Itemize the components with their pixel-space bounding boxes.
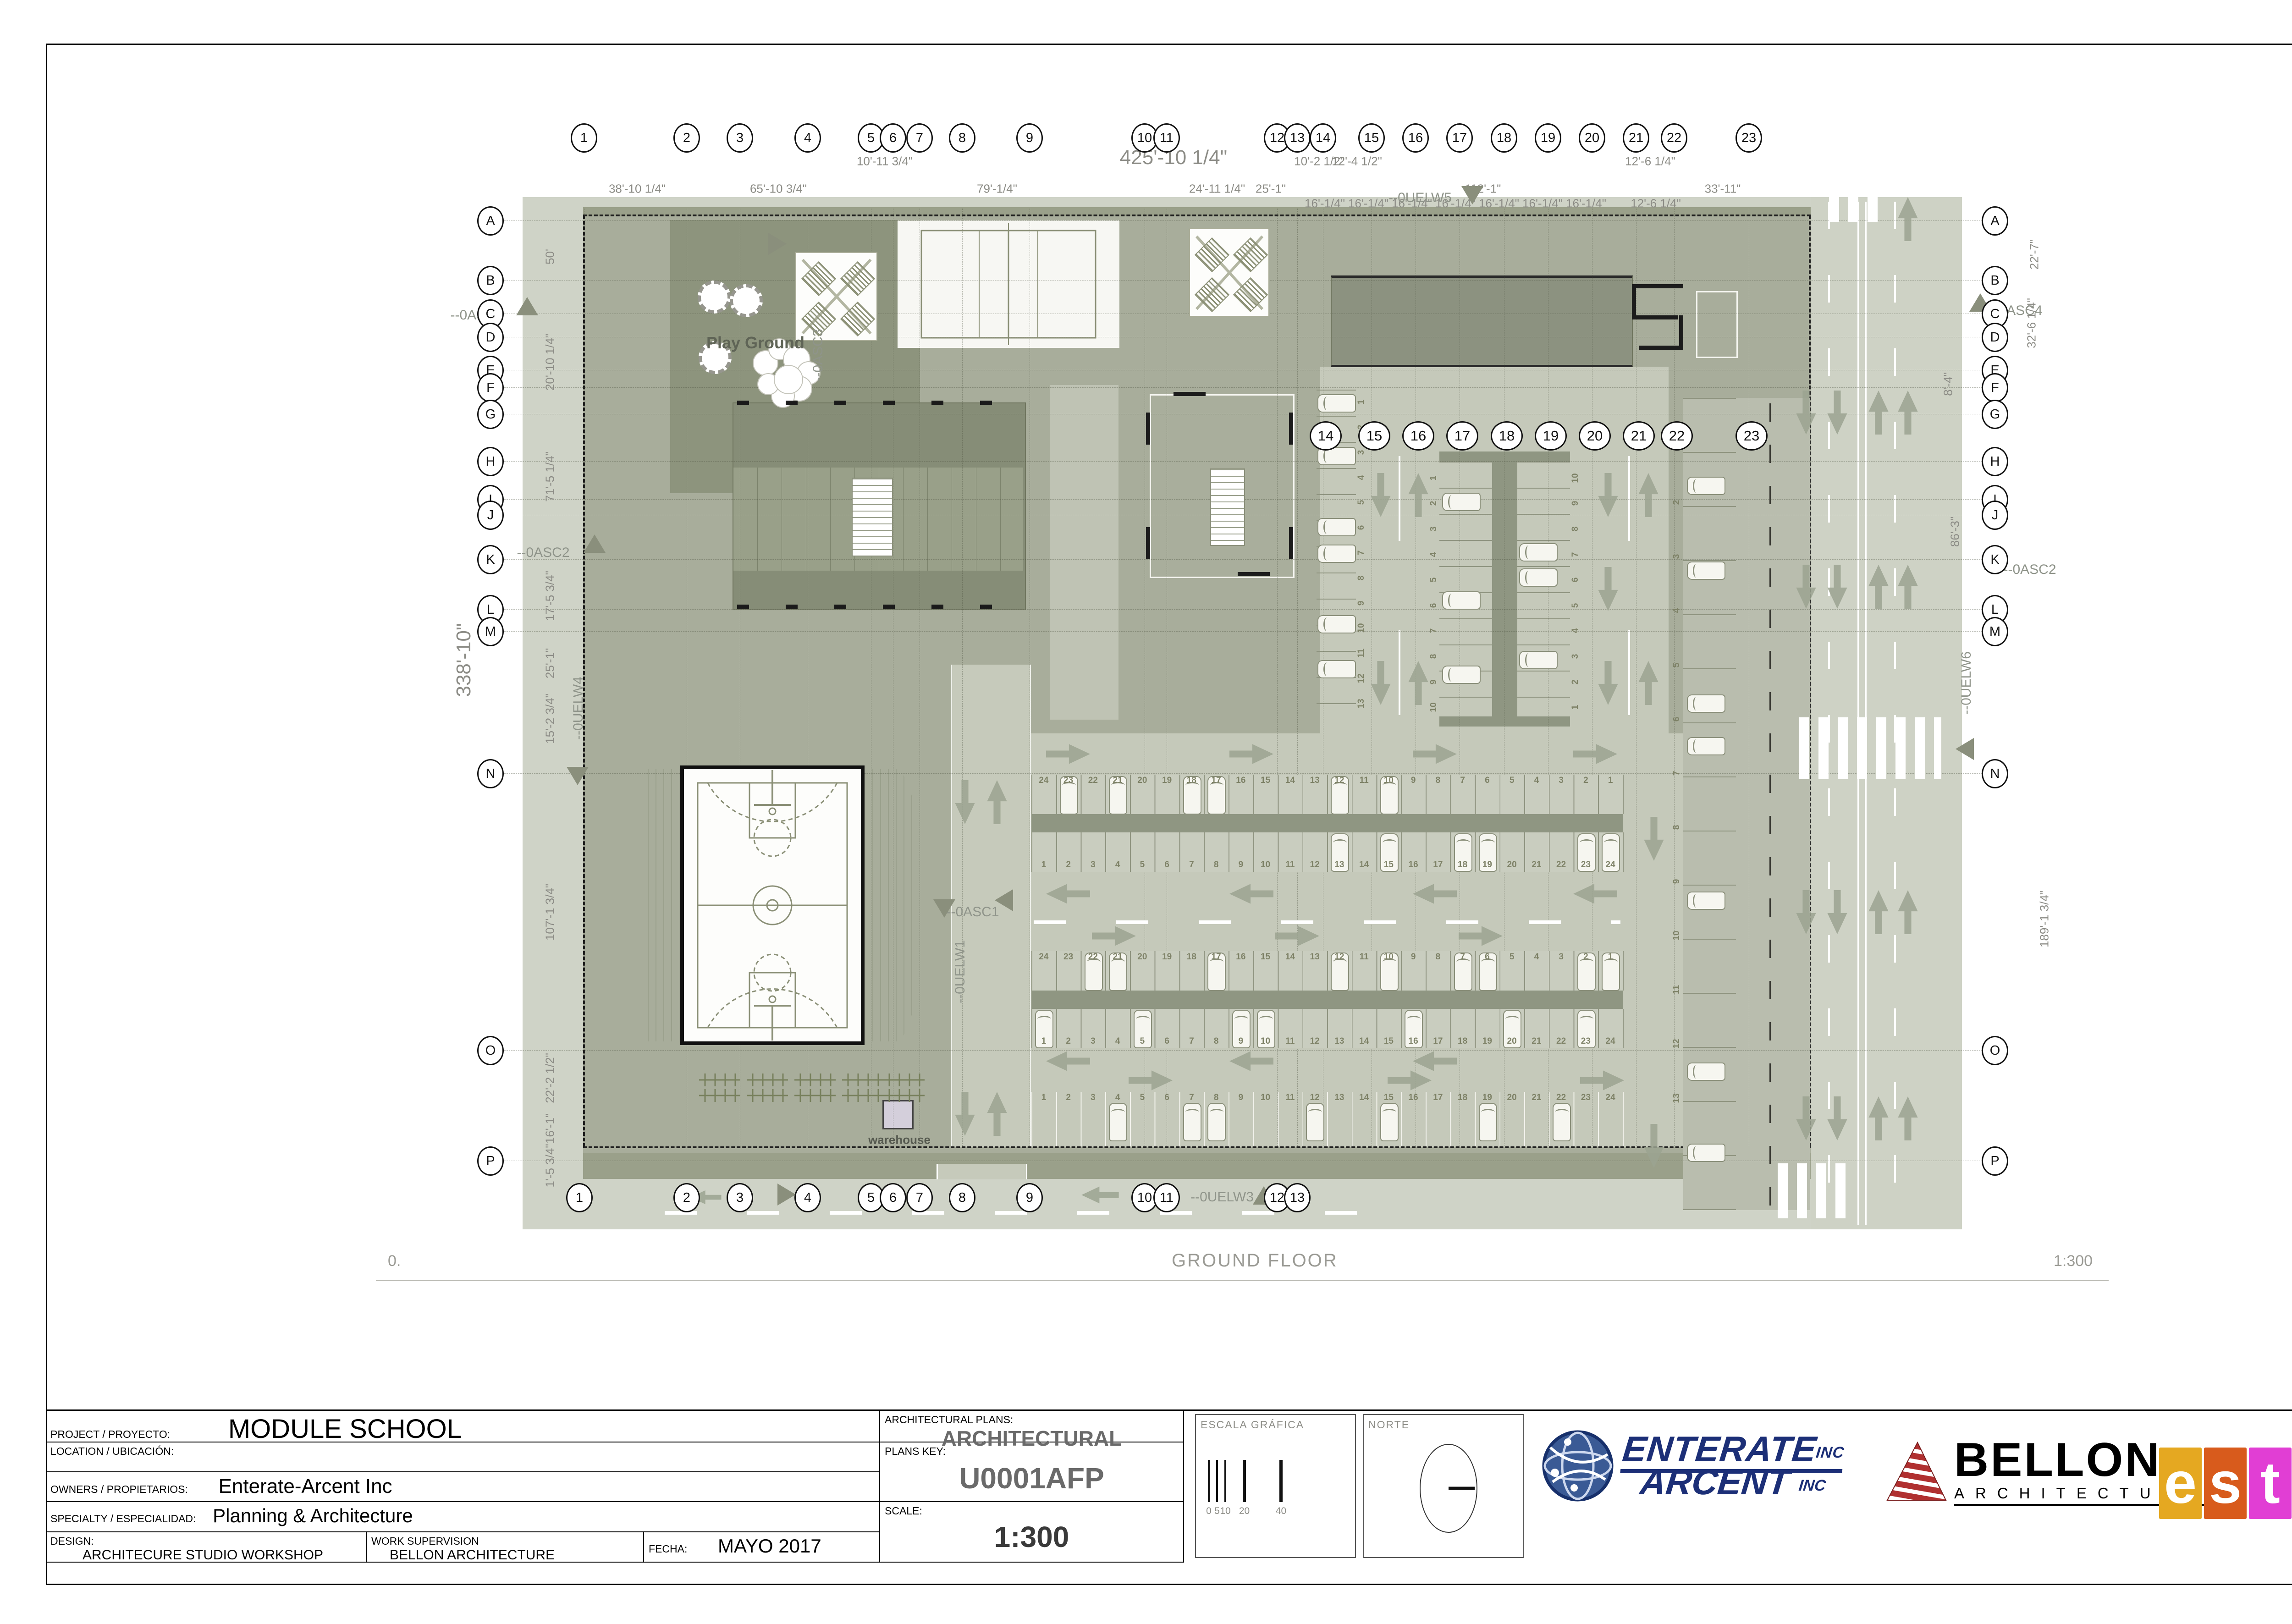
road-centerline-b: [1865, 202, 1867, 1225]
scale-bar: [1216, 1460, 1218, 1502]
cell-location: LOCATION / UBICACIÓN:: [46, 1442, 880, 1472]
stall-number: 12: [1356, 673, 1366, 683]
dimension-label: 16'-1/4": [1479, 197, 1519, 211]
parking-band-1-median: [1031, 814, 1623, 832]
dimension-label: 12'-4 1/2": [1332, 154, 1382, 169]
stall-number: 14: [1285, 776, 1295, 786]
south-entry-drive: [937, 1164, 1027, 1179]
stall-number: 12: [1334, 776, 1344, 786]
stall-number: 6: [1429, 603, 1439, 608]
estar-letter-block: t: [2249, 1448, 2292, 1519]
grid-bubble-4: 4: [794, 123, 821, 153]
stall-number: 24: [1039, 776, 1048, 786]
title-block: PROJECT / PROYECTO: MODULE SCHOOL LOCATI…: [46, 1409, 2292, 1563]
stall-number: 2: [1570, 679, 1581, 684]
stall-number: 20: [1507, 1036, 1517, 1046]
stall-number: 11: [1285, 860, 1295, 870]
stall-number: 10: [1356, 623, 1366, 633]
grid-bubble-6: 6: [880, 123, 906, 153]
plans-label: ARCHITECTURAL PLANS:: [885, 1414, 1179, 1426]
courtyard-band: [1050, 385, 1118, 720]
dimension-label: 22'-7": [2028, 239, 2042, 270]
stall-number: 11: [1360, 952, 1369, 962]
stall-number: 5: [1356, 500, 1366, 505]
stall-number: 17: [1433, 860, 1443, 870]
cell-plans: ARCHITECTURAL PLANS: ARCHITECTURAL: [880, 1411, 1184, 1442]
lane-line-3: [1628, 456, 1630, 541]
stall-number: 9: [1239, 1036, 1244, 1046]
stall-number: 20: [1507, 1093, 1517, 1103]
stall-number: 16: [1409, 1036, 1418, 1046]
stall-number: 8: [1214, 1093, 1219, 1103]
annex-e-spine-left: [1632, 284, 1636, 319]
stall-number: 9: [1411, 952, 1416, 962]
north-box: NORTE: [1363, 1414, 1524, 1558]
stall-number: 10: [1384, 952, 1394, 962]
stall-number: 22: [1088, 952, 1098, 962]
gridline-col-5: [871, 209, 871, 1146]
stall-number: 7: [1189, 1093, 1194, 1103]
design-label: DESIGN:: [50, 1535, 361, 1547]
stall-number: 8: [1429, 654, 1439, 659]
stall-number: 22: [1556, 1093, 1566, 1103]
annotation-label: --0UELW6: [1959, 651, 1974, 715]
shade-canopy-west: [795, 252, 877, 341]
stall-number: 1: [1356, 400, 1366, 405]
building-west-stairwell: [852, 478, 893, 556]
car: [1317, 615, 1356, 633]
stall-number: 10: [1261, 1093, 1270, 1103]
car: [1306, 1103, 1324, 1141]
plan-scale: 1:300: [2054, 1252, 2093, 1270]
stall-number: 7: [1429, 628, 1439, 633]
stall-number: 5: [1510, 952, 1515, 962]
stall-number: 16: [1236, 952, 1245, 962]
car: [1687, 1062, 1725, 1081]
stall-number: 7: [1460, 952, 1465, 962]
scale-bar: [1224, 1460, 1226, 1502]
stall-number: 3: [1559, 952, 1564, 962]
stall-number: 9: [1356, 600, 1366, 606]
dimension-label: 12'-6 1/4": [1625, 154, 1675, 169]
stall-number: 6: [1672, 716, 1682, 721]
dimension-label: 17'-5 3/4": [543, 571, 557, 621]
gridline-row-F: [504, 387, 1989, 388]
stall-number: 8: [1436, 952, 1441, 962]
grid-bubble-O: O: [1982, 1036, 2008, 1065]
stall-number: 24: [1606, 1036, 1615, 1046]
annotation-label: --0ASC2: [2003, 562, 2056, 578]
key-label: PLANS KEY:: [885, 1445, 1179, 1458]
grid-bubble-1: 1: [571, 123, 597, 153]
enterate-inc: INC: [1815, 1444, 1846, 1461]
stall-number: 4: [1429, 552, 1439, 557]
car: [1109, 1103, 1127, 1141]
stall-number: 5: [1510, 776, 1515, 786]
road-lane-dash-right: [1894, 202, 1896, 1225]
gridline-row-A: [504, 220, 1989, 221]
plan-number: 0.: [388, 1252, 401, 1270]
road-lane-dash-left: [1828, 202, 1830, 1225]
stall-number: 7: [1356, 551, 1366, 556]
grid-bubble-19: 19: [1535, 123, 1561, 153]
stall-number: 17: [1433, 1093, 1443, 1103]
annotation-label: Play Ground: [706, 333, 804, 352]
owners-label: OWNERS / PROPIETARIOS:: [50, 1483, 188, 1495]
gridline-col-9: [1030, 209, 1030, 1146]
building-center-wall-5: [1174, 392, 1206, 396]
grid-bubble-K: K: [477, 545, 504, 574]
scale-label: SCALE:: [885, 1505, 1179, 1517]
dimension-label: 20'-10 1/4": [543, 334, 557, 391]
stall-number: 19: [1482, 1036, 1492, 1046]
building-center-wall-1: [1146, 413, 1150, 445]
car: [1442, 666, 1481, 684]
stall-number: 13: [1310, 952, 1320, 962]
stall-number: 8: [1672, 825, 1682, 830]
stall-number: 19: [1482, 1093, 1492, 1103]
stall-number: 3: [1091, 860, 1096, 870]
stall-number: 24: [1606, 860, 1615, 870]
stall-number: 17: [1433, 1036, 1443, 1046]
gridline-row-E: [504, 370, 1989, 370]
grid-bubble-9: 9: [1016, 123, 1043, 153]
specialty-value: Planning & Architecture: [213, 1505, 413, 1526]
stall-number: 23: [1581, 1093, 1591, 1103]
stall-number: 1: [1429, 476, 1439, 481]
cell-specialty: SPECIALTY / ESPECIALIDAD: Planning & Arc…: [46, 1502, 880, 1532]
grid-bubble-3: 3: [727, 1183, 753, 1212]
right-strip-lane-line: [1769, 403, 1771, 1206]
stall-number: 1: [1570, 705, 1581, 710]
stall-number: 7: [1570, 552, 1581, 557]
dimension-label: 16'-1/4": [1522, 197, 1563, 211]
gridline-col-8: [962, 209, 963, 1146]
marker-triangle-icon: [1461, 186, 1483, 204]
stall-number: 21: [1532, 1093, 1541, 1103]
bellon-triangle-icon: [1882, 1437, 1950, 1506]
car: [1380, 1103, 1399, 1141]
stall-number: 5: [1570, 603, 1581, 608]
car: [1317, 545, 1356, 563]
grid-bubble-9: 9: [1016, 1183, 1043, 1212]
scale-bar: [1243, 1460, 1246, 1502]
plan-title: GROUND FLOOR: [1172, 1250, 1338, 1271]
car: [1207, 1103, 1226, 1141]
annotation-label: --0ASC2: [517, 545, 569, 561]
scale-bar: [1208, 1460, 1210, 1502]
bleachers-west: [641, 769, 679, 1041]
grid-bubble-16: 16: [1402, 421, 1434, 451]
lane-line-2: [1399, 630, 1400, 715]
dimension-label: 79'-1/4": [977, 182, 1017, 196]
scale-tick-label: 0: [1206, 1506, 1212, 1517]
stall-number: 23: [1063, 776, 1073, 786]
stall-number: 10: [1261, 1036, 1270, 1046]
grid-bubble-M: M: [477, 617, 504, 646]
globe-icon: [1541, 1429, 1614, 1503]
building-center-stairwell: [1210, 468, 1245, 546]
cell-owners: OWNERS / PROPIETARIOS: Enterate-Arcent I…: [46, 1472, 880, 1502]
building-center-wall-6: [1238, 572, 1270, 576]
car: [1317, 394, 1356, 413]
crosswalk-top: [1829, 187, 1886, 222]
building-west-columns-top: [737, 401, 1021, 405]
annotation-label: --0ASC3: [810, 329, 826, 381]
dimension-label: 38'-10 1/4": [609, 182, 666, 196]
dimension-label: 1'-5 3/4": [543, 1144, 557, 1187]
stall-number: 15: [1261, 952, 1270, 962]
stall-number: 3: [1559, 776, 1564, 786]
car: [1519, 543, 1558, 562]
stall-number: 6: [1356, 525, 1366, 530]
stall-number: 18: [1458, 1093, 1467, 1103]
grid-bubble-15: 15: [1358, 123, 1385, 153]
annotation-label: --0UELW4: [571, 677, 586, 740]
grid-bubble-13: 13: [1284, 123, 1311, 153]
car: [1687, 477, 1725, 495]
grid-bubble-21: 21: [1623, 123, 1649, 153]
tree-icon: [792, 1067, 838, 1112]
grid-bubble-17: 17: [1446, 421, 1478, 451]
grid-bubble-P: P: [1982, 1146, 2008, 1176]
lane-line-4: [1628, 630, 1630, 715]
building-center-wall-3: [1146, 527, 1150, 559]
stall-number: 2: [1672, 500, 1682, 505]
stall-number: 5: [1140, 1036, 1145, 1046]
gridline-row-I: [504, 499, 1989, 500]
building-west-columns-bottom: [737, 605, 1021, 609]
stall-number: 20: [1507, 860, 1517, 870]
dimension-label: 16'-1/4": [1566, 197, 1606, 211]
dimension-label: 86'-3": [1948, 517, 1962, 547]
cell-scale: SCALE: 1:300: [880, 1502, 1184, 1563]
mid-parking-header-top: [1439, 451, 1570, 462]
cell-project: PROJECT / PROYECTO: MODULE SCHOOL: [46, 1411, 880, 1442]
stall-number: 11: [1356, 649, 1366, 658]
stall-number: 5: [1672, 662, 1682, 667]
crosswalk-bottom: [1778, 1163, 1846, 1218]
marker-triangle-icon: [584, 534, 606, 553]
stall-number: 6: [1164, 1093, 1169, 1103]
annex-e-bar-bottom: [1639, 346, 1683, 350]
road-centerline-a: [1857, 202, 1859, 1225]
car: [1687, 892, 1725, 910]
grid-bubble-D: D: [1982, 323, 2008, 352]
key-value: U0001AFP: [885, 1461, 1179, 1495]
car: [1442, 493, 1481, 511]
grid-bubble-20: 20: [1579, 421, 1611, 451]
grid-bubble-19: 19: [1535, 421, 1567, 451]
stall-number: 18: [1187, 952, 1196, 962]
stall-number: 13: [1334, 860, 1344, 870]
grid-bubble-21: 21: [1623, 421, 1655, 451]
stall-number: 3: [1429, 527, 1439, 532]
annotation-label: --0UELW3: [1190, 1189, 1254, 1205]
annotation-label: --0UELW5: [1388, 190, 1452, 206]
dimension-label: 15'-2 3/4": [543, 694, 557, 744]
grid-bubble-N: N: [477, 759, 504, 788]
stall-number: 1: [1041, 860, 1047, 870]
grid-bubble-M: M: [1982, 617, 2008, 646]
stall-number: 19: [1162, 952, 1172, 962]
stall-number: 5: [1429, 578, 1439, 583]
grid-bubble-8: 8: [949, 123, 975, 153]
grid-bubble-17: 17: [1446, 123, 1473, 153]
car: [1553, 1103, 1571, 1141]
annex-e-bar-top: [1632, 284, 1683, 288]
cell-design: DESIGN: ARCHITECURE STUDIO WORKSHOP: [46, 1532, 367, 1563]
car: [1687, 1144, 1725, 1162]
stall-number: 11: [1285, 1093, 1295, 1103]
gridline-col-21: [1636, 209, 1636, 1146]
stall-number: 6: [1164, 1036, 1169, 1046]
bleachers-east: [865, 769, 913, 1041]
stall-number: 21: [1113, 952, 1123, 962]
stall-number: 12: [1310, 860, 1320, 870]
stall-number: 16: [1409, 1093, 1418, 1103]
stall-number: 4: [1534, 952, 1539, 962]
dimension-label: 50': [543, 249, 557, 264]
gridline-row-L: [504, 609, 1989, 610]
stall-number: 13: [1310, 776, 1320, 786]
stall-number: 11: [1360, 776, 1369, 786]
stall-number: 10: [1384, 776, 1394, 786]
stall-number: 7: [1460, 776, 1465, 786]
stall-number: 2: [1429, 501, 1439, 506]
grid-bubble-D: D: [477, 323, 504, 352]
gridline-col-7: [920, 209, 920, 1146]
playground-ring-2: [730, 284, 763, 317]
right-strip-stalls: [1683, 398, 1736, 1211]
grid-bubble-14: 14: [1310, 421, 1342, 451]
dimension-label: 22'-2 1/2": [543, 1053, 557, 1103]
grid-bubble-23: 23: [1736, 421, 1768, 451]
location-label: LOCATION / UBICACIÓN:: [50, 1445, 174, 1457]
stall-number: 17: [1212, 776, 1221, 786]
stall-number: 22: [1556, 860, 1566, 870]
annex-e-spine-right: [1679, 315, 1683, 350]
stall-number: 9: [1672, 879, 1682, 884]
mid-parking-header-bottom: [1439, 716, 1570, 727]
stall-number: 4: [1115, 1093, 1120, 1103]
stall-number: 22: [1556, 1036, 1566, 1046]
dimension-label: 189'-1 3/4": [2038, 891, 2052, 947]
stall-number: 22: [1088, 776, 1098, 786]
stall-number: 20: [1137, 776, 1147, 786]
grid-bubble-2: 2: [673, 123, 700, 153]
grid-bubble-A: A: [1982, 206, 2008, 236]
gridline-row-G: [504, 414, 1989, 414]
dimension-label: 8'-4": [1941, 372, 1956, 396]
dimension-label: 16'-1/4": [1348, 197, 1388, 211]
car: [1687, 562, 1725, 580]
stall-number: 3: [1570, 654, 1581, 659]
dimension-label: 33'-11": [1705, 182, 1741, 196]
grid-bubble-22: 22: [1661, 421, 1693, 451]
dimension-label: 25'-1": [1256, 182, 1286, 196]
road-zone: [1811, 197, 1962, 1229]
stall-number: 5: [1140, 860, 1145, 870]
grid-bubble-11: 11: [1153, 1183, 1180, 1212]
dimension-label: 71'-5 1/4": [543, 451, 557, 502]
owners-value: Enterate-Arcent Inc: [219, 1475, 392, 1497]
stall-number: 23: [1581, 1036, 1591, 1046]
stall-number: 1: [1608, 952, 1613, 962]
dimension-label: 12'-6 1/4": [1631, 197, 1681, 211]
stall-number: 16: [1409, 860, 1418, 870]
grid-bubble-F: F: [477, 373, 504, 402]
volleyball-court: [898, 220, 1119, 348]
plan-title-underline: [376, 1280, 2109, 1281]
design-value: ARCHITECURE STUDIO WORKSHOP: [83, 1547, 361, 1563]
stall-number: 1: [1608, 776, 1613, 786]
stall-number: 9: [1411, 776, 1416, 786]
grid-bubble-4: 4: [794, 1183, 821, 1212]
stall-number: 23: [1063, 952, 1073, 962]
stall-number: 14: [1359, 860, 1369, 870]
scale-tick-label: 20: [1239, 1506, 1250, 1517]
stall-number: 14: [1359, 1093, 1369, 1103]
stall-number: 3: [1091, 1093, 1096, 1103]
dimension-label: 107'-1 3/4": [543, 884, 557, 941]
annotation-label: --0UELW1: [953, 940, 968, 1003]
stall-number: 6: [1164, 860, 1169, 870]
stall-number: 15: [1384, 1036, 1394, 1046]
grid-bubble-B: B: [1982, 266, 2008, 295]
stall-number: 24: [1039, 952, 1048, 962]
stall-number: 9: [1239, 860, 1244, 870]
fecha-label: FECHA:: [649, 1543, 687, 1555]
stall-number: 20: [1137, 952, 1147, 962]
gridline-col-6: [893, 209, 893, 1146]
stall-number: 9: [1570, 501, 1581, 506]
car: [1687, 694, 1725, 713]
stall-number: 12: [1310, 1036, 1320, 1046]
marker-triangle-icon: [516, 297, 538, 315]
annotation-label: warehouse: [868, 1133, 931, 1147]
canopy-bench: [840, 261, 875, 296]
lane-dashes-aisle1: [1034, 920, 1620, 924]
playground-cloud-8: [774, 365, 803, 394]
north-boundary-wall: [583, 215, 1811, 216]
grid-bubble-J: J: [1982, 501, 2008, 530]
grid-bubble-15: 15: [1358, 421, 1390, 451]
stall-number: 13: [1334, 1093, 1344, 1103]
car: [1317, 518, 1356, 536]
grid-bubble-1: 1: [566, 1183, 593, 1212]
grid-bubble-N: N: [1982, 759, 2008, 788]
stall-number: 4: [1115, 860, 1120, 870]
gridline-row-M: [504, 631, 1989, 632]
lane-line-1: [1399, 456, 1400, 541]
stall-number: 3: [1672, 554, 1682, 559]
stall-number: 23: [1581, 860, 1591, 870]
canopy-bench: [1233, 237, 1267, 272]
stall-number: 4: [1570, 628, 1581, 633]
stall-number: 4: [1672, 608, 1682, 613]
stall-number: 21: [1532, 1036, 1541, 1046]
annex-entry: [1696, 291, 1738, 358]
graphic-scale-box: ESCALA GRÁFICA 05102040: [1195, 1414, 1356, 1558]
stall-number: 7: [1672, 771, 1682, 776]
gridline-row-P: [504, 1161, 1989, 1161]
gridline-row-K: [504, 559, 1989, 560]
stall-number: 18: [1458, 1036, 1467, 1046]
grid-bubble-3: 3: [727, 123, 753, 153]
crosswalk-middle: [1799, 717, 1941, 779]
stall-number: 3: [1091, 1036, 1096, 1046]
